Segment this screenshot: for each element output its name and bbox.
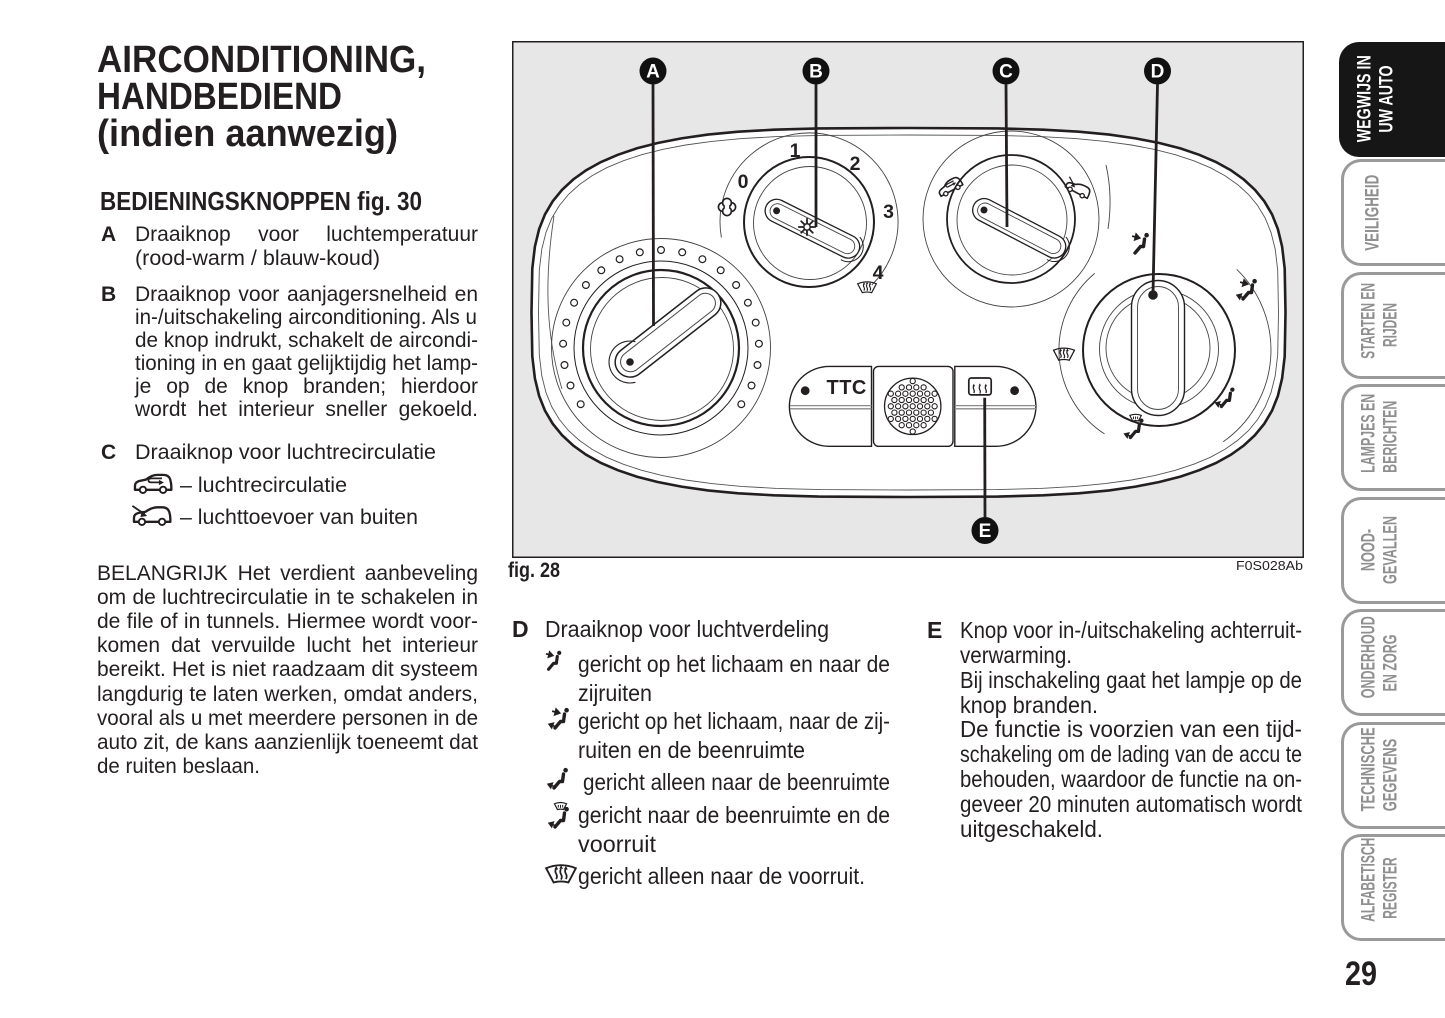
- svg-text:A: A: [646, 62, 660, 83]
- svg-text:B: B: [809, 62, 823, 83]
- svg-text:1: 1: [790, 140, 801, 162]
- svg-text:TTC: TTC: [827, 377, 867, 399]
- svg-text:C: C: [999, 62, 1013, 83]
- svg-text:4: 4: [873, 262, 884, 284]
- svg-text:2: 2: [850, 153, 861, 175]
- svg-text:E: E: [979, 521, 992, 542]
- svg-text:D: D: [1151, 62, 1165, 83]
- svg-text:0: 0: [738, 171, 749, 193]
- svg-text:3: 3: [883, 201, 894, 223]
